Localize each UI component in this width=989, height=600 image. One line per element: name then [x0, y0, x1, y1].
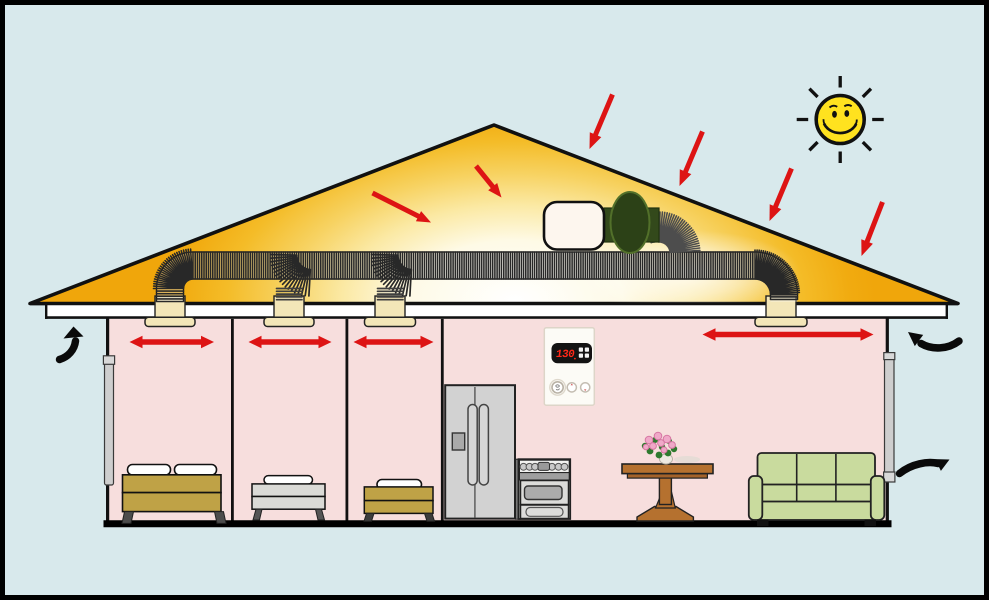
svg-text:130: 130: [555, 349, 575, 361]
